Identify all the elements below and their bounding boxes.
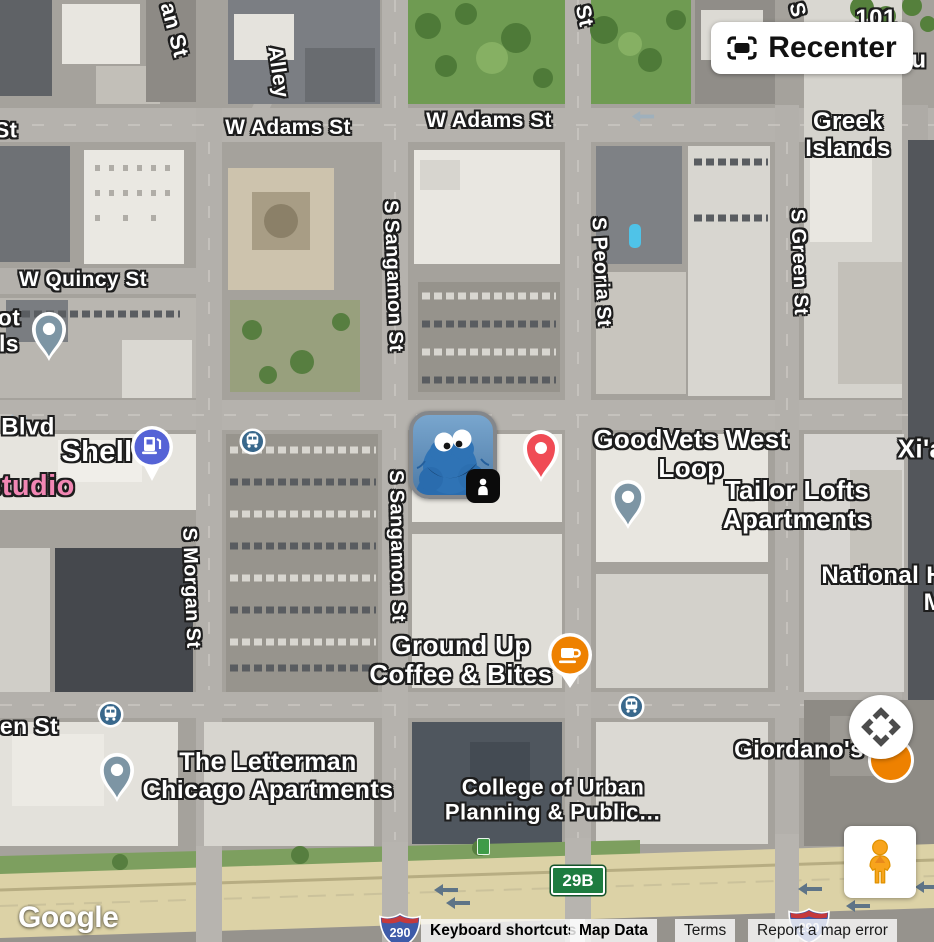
google-logo[interactable]: Google: [18, 901, 118, 935]
street-view-person-badge: [466, 469, 500, 503]
interstate-shield-partial: 290: [379, 913, 421, 942]
route-arrow-left-icon: [631, 110, 655, 123]
terms-link[interactable]: Terms: [675, 919, 735, 942]
map-data-link[interactable]: Map Data: [570, 919, 657, 942]
traffic-arrow-left-icon: [845, 899, 871, 913]
exit-sign-29b: 29B: [551, 866, 605, 895]
traffic-arrow-left-icon: [914, 880, 934, 894]
traffic-arrow-left-icon: [797, 882, 823, 896]
traffic-arrow-left-icon: [433, 883, 459, 897]
keyboard-shortcuts-link[interactable]: Keyboard shortcuts: [421, 919, 585, 942]
pegman-icon: [859, 838, 901, 886]
pan-control[interactable]: [849, 695, 913, 759]
route-arrow-left-icon: [4, 413, 28, 426]
goodvets-saved-place-pin[interactable]: [519, 427, 563, 483]
bus-stop-icon[interactable]: [239, 428, 266, 455]
letterman-pin[interactable]: [96, 750, 138, 803]
recenter-button[interactable]: Recenter: [711, 22, 913, 74]
bus-stop-icon[interactable]: [618, 693, 645, 720]
bus-stop-icon[interactable]: [97, 701, 124, 728]
center-frame-icon: [727, 36, 757, 60]
four-direction-arrows-icon: [849, 695, 913, 759]
traffic-arrow-left-icon: [445, 896, 471, 910]
person-icon: [472, 475, 494, 497]
small-transit-marker: [477, 838, 490, 855]
lodging-pin[interactable]: [28, 309, 70, 362]
shell-gas-station-pin[interactable]: [128, 423, 176, 483]
report-map-error-link[interactable]: Report a map error: [748, 919, 897, 942]
google-maps-satellite-view[interactable]: an St Alley W Adams St W Adams St St S W…: [0, 0, 934, 942]
ground-up-coffee-pin[interactable]: [546, 631, 594, 689]
recenter-label: Recenter: [768, 31, 896, 65]
tailor-lofts-pin[interactable]: [607, 477, 649, 530]
svg-text:290: 290: [390, 926, 411, 940]
pegman-street-view-control[interactable]: [844, 826, 916, 898]
